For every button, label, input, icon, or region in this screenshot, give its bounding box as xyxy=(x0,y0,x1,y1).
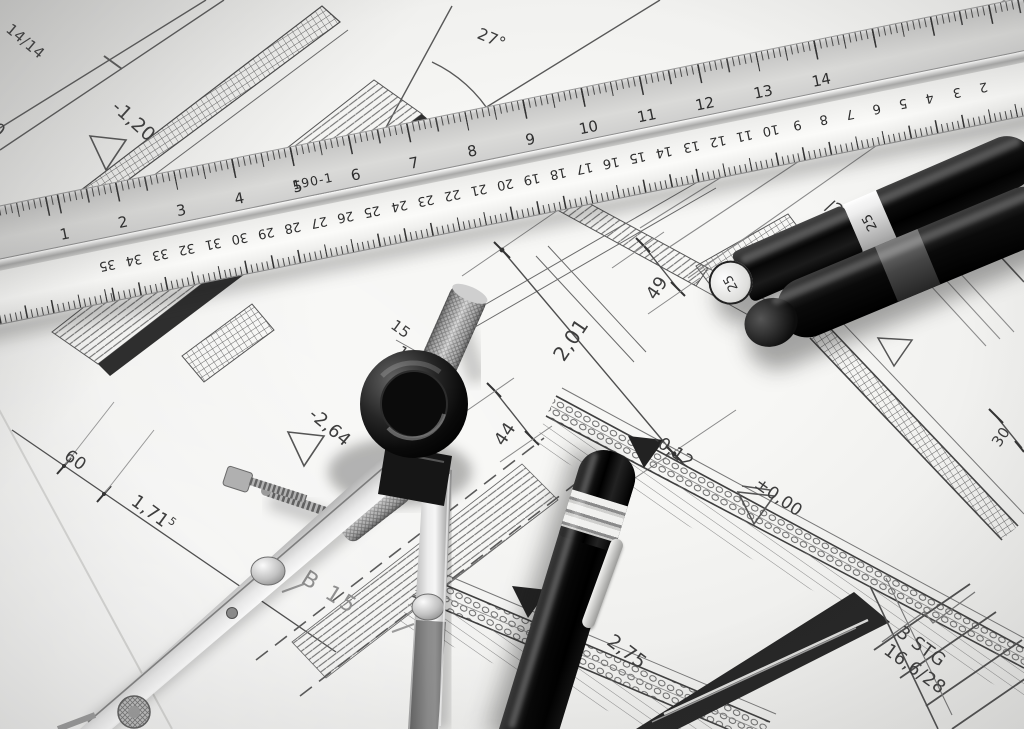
compass-grip-knob xyxy=(360,350,468,458)
drafting-compass-group xyxy=(0,0,1024,729)
compass-leg-left xyxy=(58,450,418,729)
photo-blueprint-scene: 20 14/14 27° -1,20 15 17,6 -2,64 2,01 49… xyxy=(0,0,1024,729)
pen-size-label: 25 xyxy=(859,211,881,234)
pen-cap-end-label: 25 xyxy=(720,272,741,294)
